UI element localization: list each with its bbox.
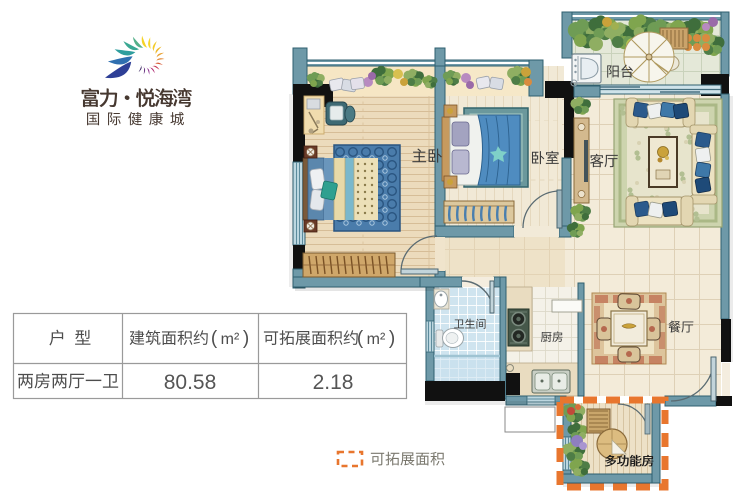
- svg-text:(: (: [357, 328, 364, 349]
- svg-text:2.18: 2.18: [313, 371, 354, 394]
- svg-text:80.58: 80.58: [164, 371, 217, 394]
- svg-text:m²: m²: [367, 331, 386, 348]
- svg-text:m²: m²: [221, 331, 240, 348]
- svg-text:): ): [389, 328, 395, 349]
- svg-text:): ): [243, 328, 249, 349]
- svg-text:(: (: [211, 328, 218, 349]
